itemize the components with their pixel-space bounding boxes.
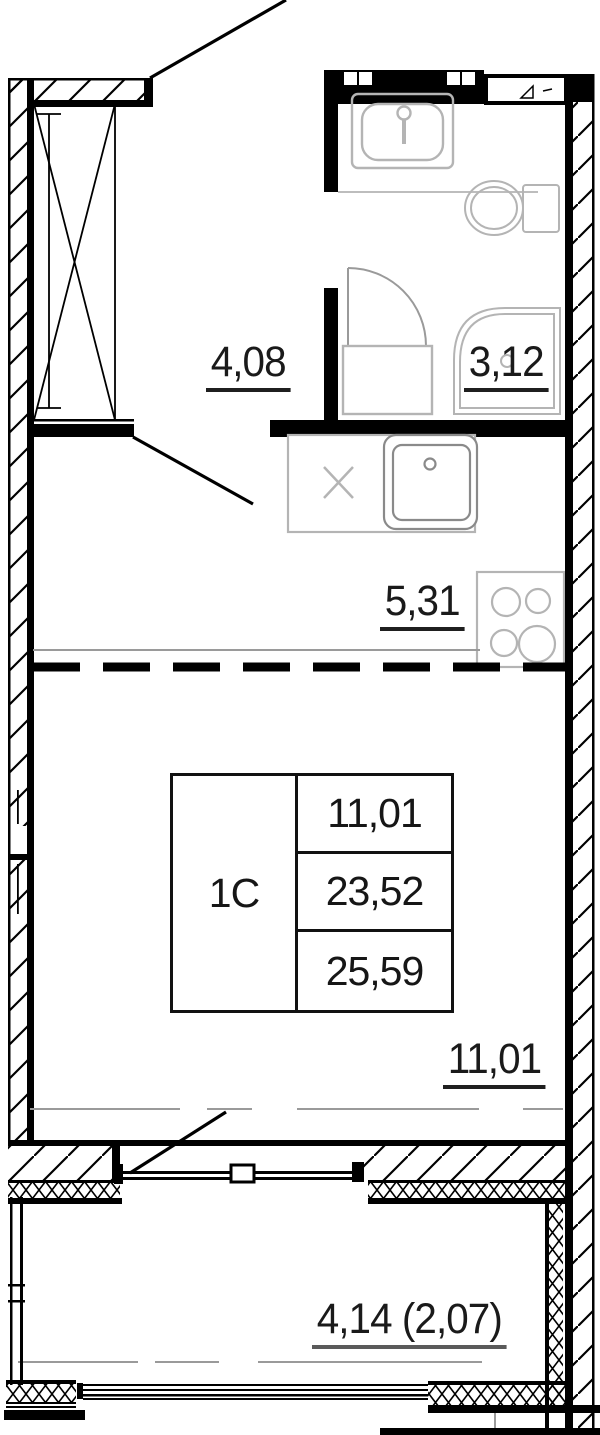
balcony-walls xyxy=(4,1197,600,1435)
room-label-hall: 4,08 xyxy=(206,340,290,392)
right-exterior-wall xyxy=(565,74,595,1435)
unit-type-value: 1С xyxy=(209,870,259,917)
unit-type-cell: 1С xyxy=(173,776,298,1010)
top-wall-segment xyxy=(8,78,153,107)
wardrobe-icon xyxy=(34,104,115,420)
room-label-balcony: 4,14 (2,07) xyxy=(312,1297,507,1349)
room-label-bathroom: 3,12 xyxy=(464,340,548,392)
total-area-cell: 25,59 xyxy=(298,932,451,1010)
kitchen-area-value: 5,31 xyxy=(385,577,460,625)
washing-machine-icon xyxy=(343,346,432,414)
apartment-area-cell: 23,52 xyxy=(298,854,451,932)
washbasin-icon xyxy=(352,94,453,168)
table-total-area: 25,59 xyxy=(326,948,424,995)
kitchen-sink-icon xyxy=(384,435,477,529)
table-apartment-area: 23,52 xyxy=(326,868,424,915)
hall-area-value: 4,08 xyxy=(211,338,286,386)
kitchen-fixtures xyxy=(288,435,564,667)
stove-icon xyxy=(477,572,564,667)
room-label-living: 11,01 xyxy=(443,1037,546,1089)
bathroom-area-value: 3,12 xyxy=(469,338,544,386)
floor-plan: 4,08 3,12 5,31 11,01 4,14 (2,07) 1С 11,0… xyxy=(0,0,600,1435)
bottom-exterior-wall xyxy=(8,1140,566,1204)
bathroom-door-icon xyxy=(348,268,426,346)
unit-info-table: 1С 11,01 23,52 25,59 xyxy=(170,773,454,1013)
balcony-area-value: 4,14 (2,07) xyxy=(317,1295,502,1343)
hall-partition-wall xyxy=(27,419,134,437)
living-area-cell: 11,01 xyxy=(298,776,451,854)
toilet-icon xyxy=(465,181,559,235)
plan-linework xyxy=(0,0,600,1435)
table-living-area: 11,01 xyxy=(327,790,422,837)
balcony-window-icon xyxy=(114,1162,364,1184)
balcony-glazing-icon xyxy=(77,1383,428,1400)
room-label-kitchen: 5,31 xyxy=(380,579,464,631)
living-area-value: 11,01 xyxy=(448,1035,541,1083)
left-exterior-wall xyxy=(8,78,34,1142)
